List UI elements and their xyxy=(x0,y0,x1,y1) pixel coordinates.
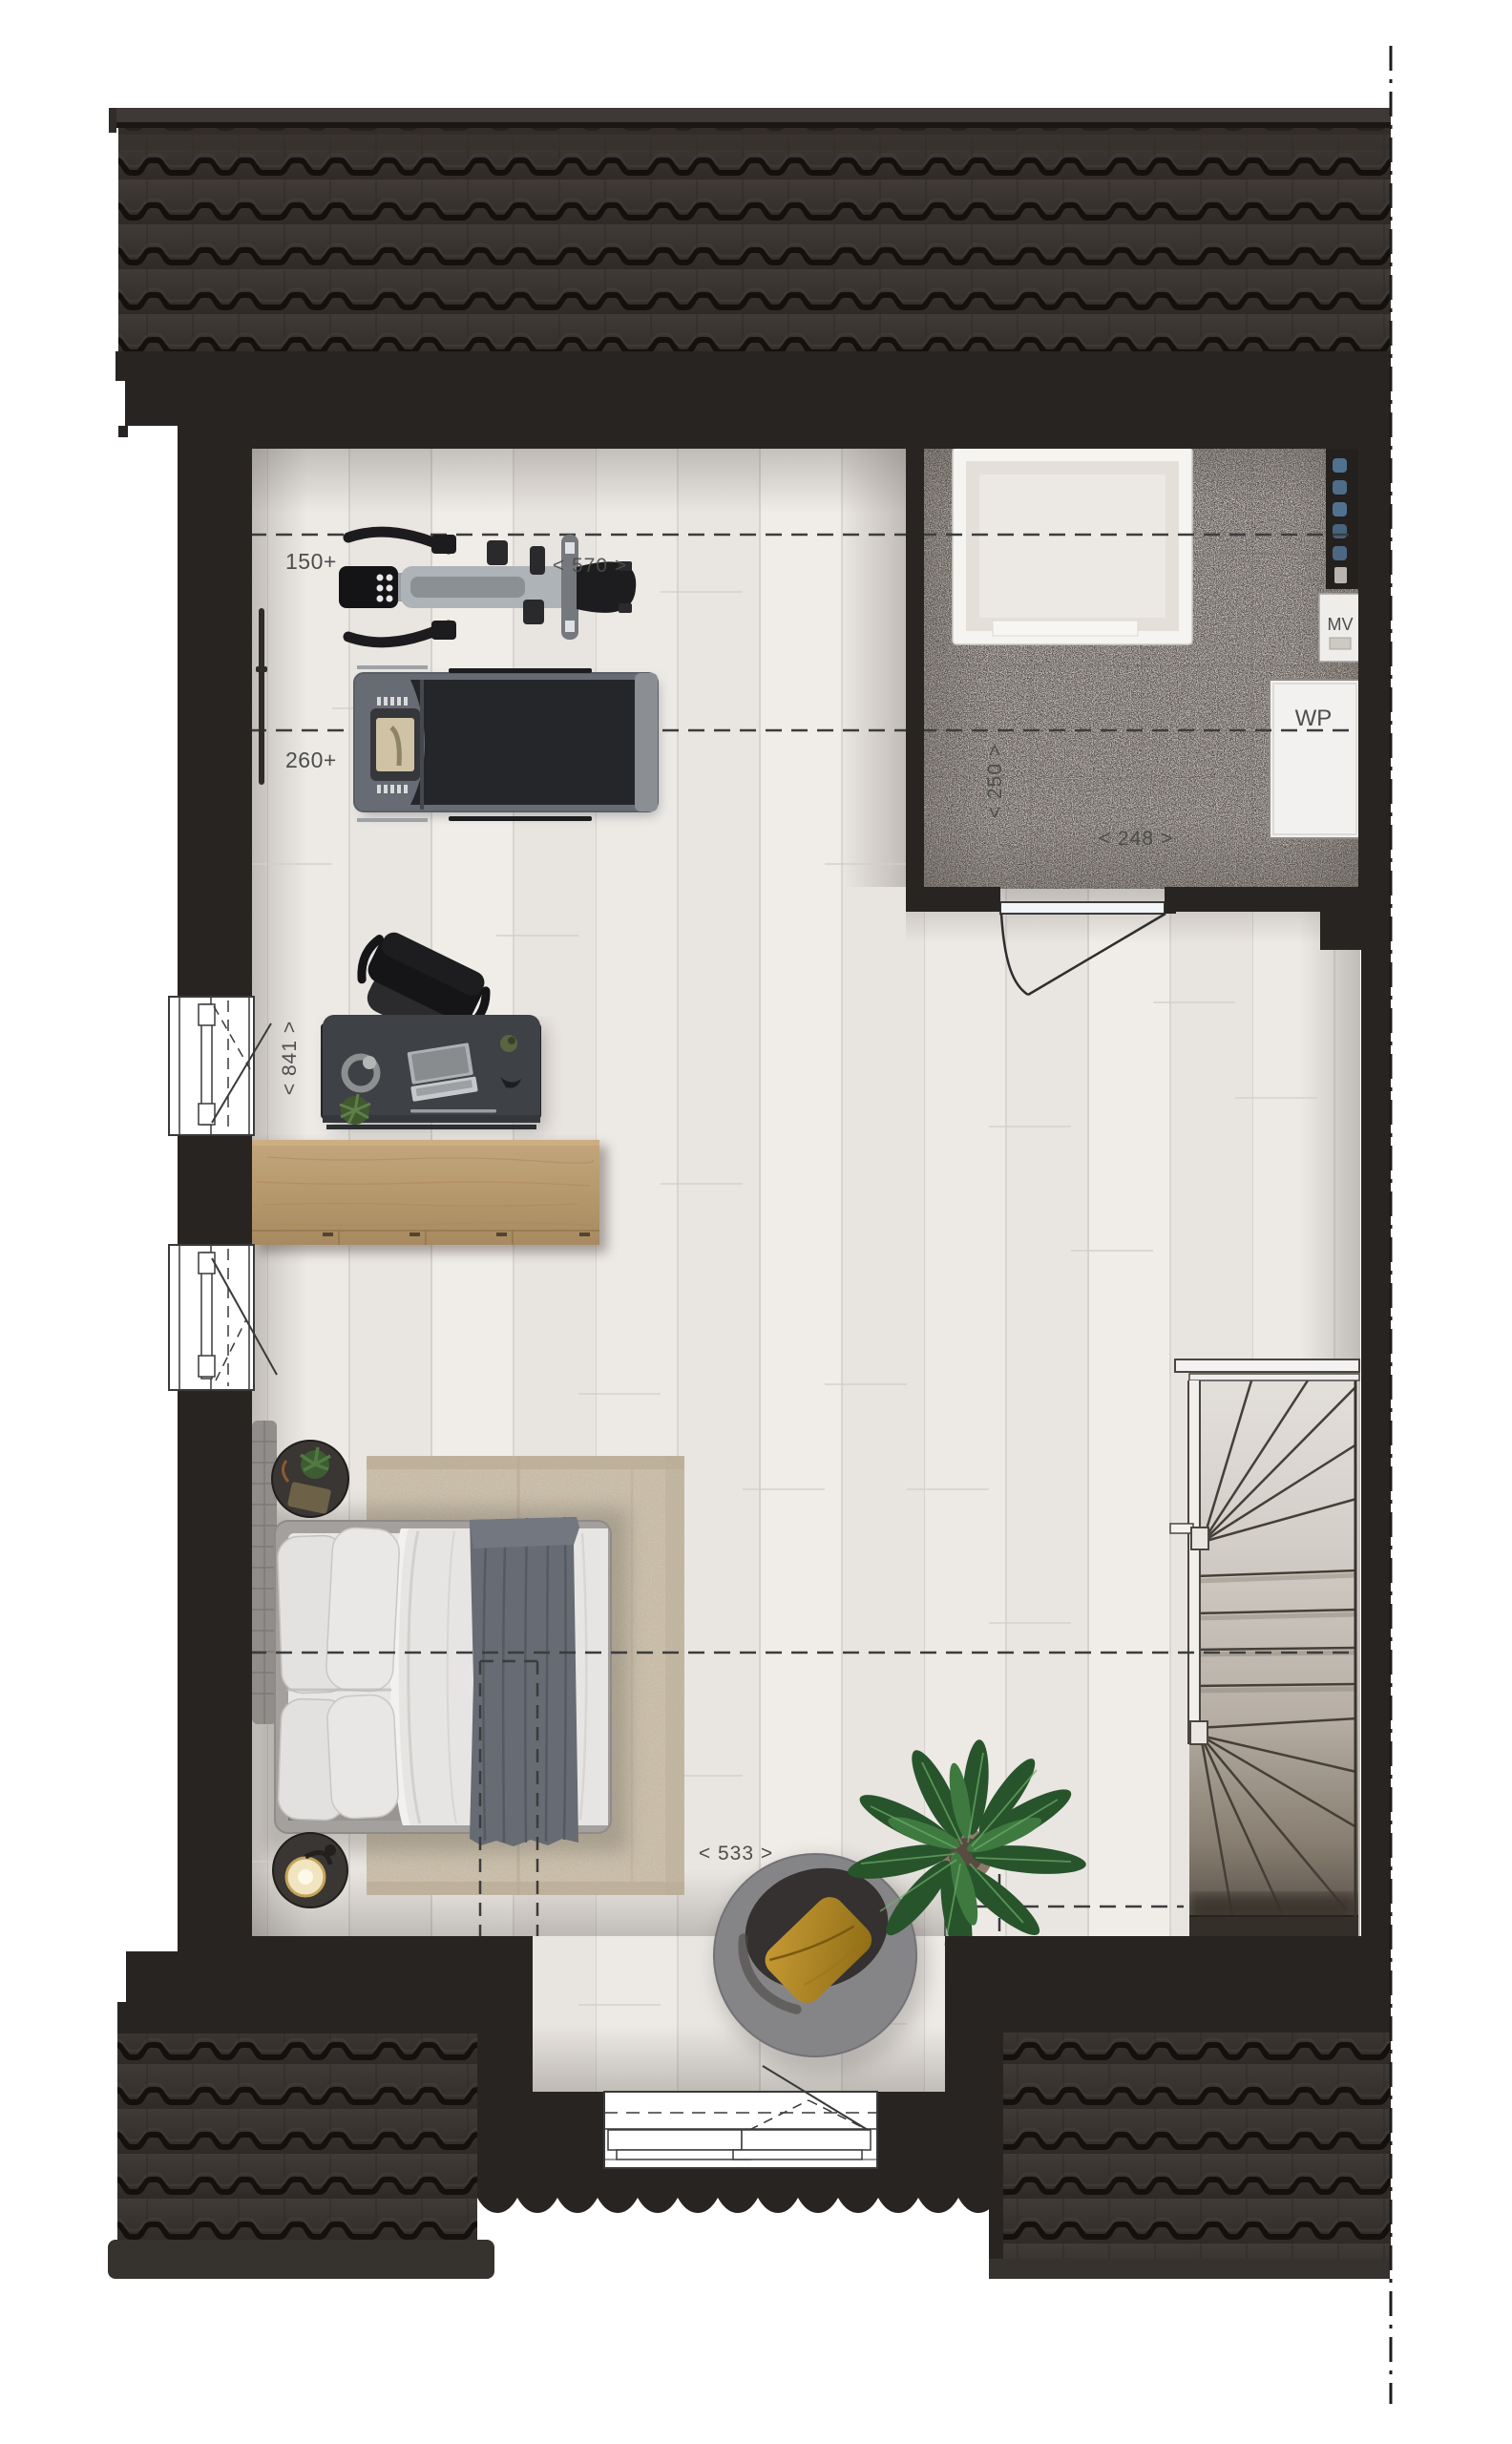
svg-text:150+: 150+ xyxy=(285,549,337,574)
svg-text:WP: WP xyxy=(1295,706,1333,731)
svg-text:MV: MV xyxy=(1328,615,1354,634)
svg-text:< 570 >: < 570 > xyxy=(553,555,627,577)
svg-text:260+: 260+ xyxy=(285,748,337,772)
svg-text:< 248 >: < 248 > xyxy=(1099,828,1173,850)
svg-text:< 250 >: < 250 > xyxy=(984,744,1006,818)
svg-text:< 533 >: < 533 > xyxy=(699,1843,773,1865)
svg-text:< 841 >: < 841 > xyxy=(279,1021,301,1095)
